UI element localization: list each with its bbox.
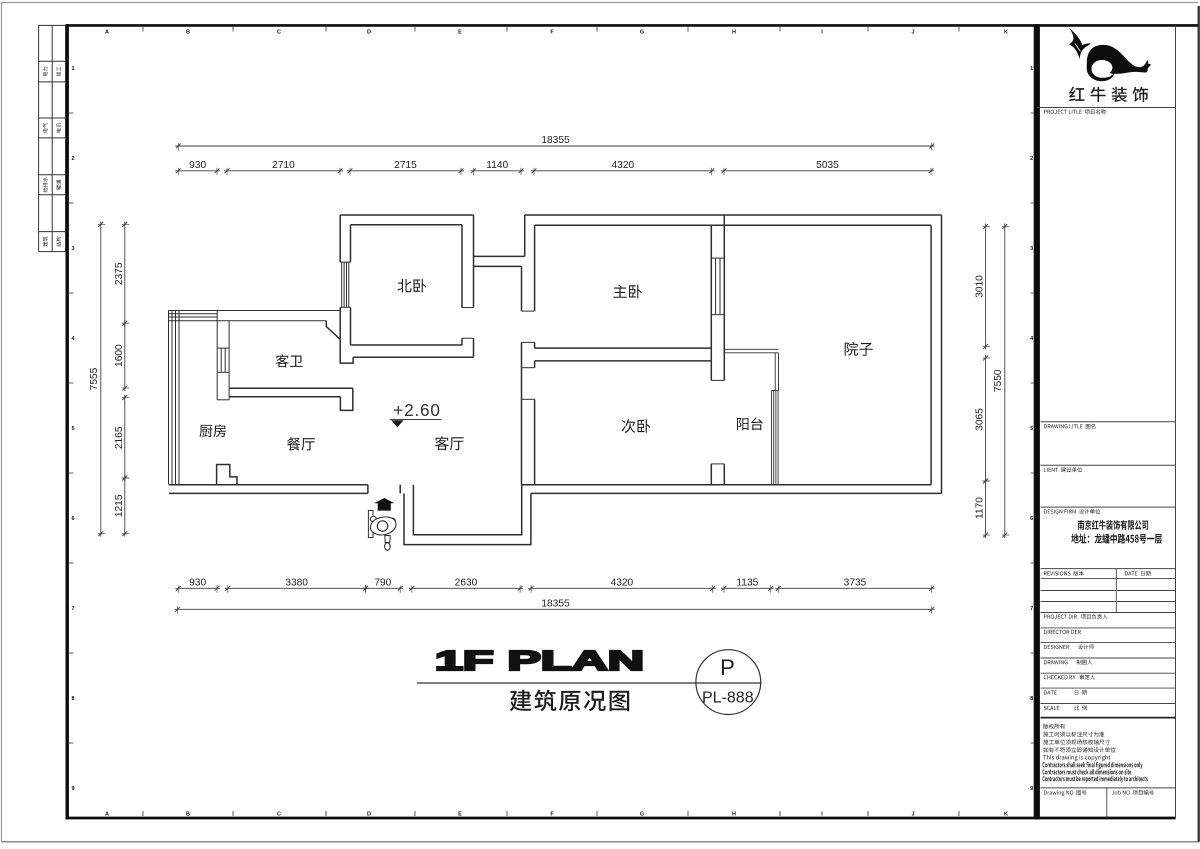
svg-text:3010: 3010 (975, 275, 986, 298)
svg-text:9: 9 (72, 786, 75, 792)
svg-text:5: 5 (72, 426, 75, 432)
svg-text:9: 9 (1030, 786, 1033, 792)
svg-text:2715: 2715 (394, 160, 417, 171)
svg-text:6: 6 (1030, 516, 1033, 522)
svg-text:3: 3 (1030, 246, 1033, 252)
svg-text:1600: 1600 (114, 344, 125, 367)
svg-text:C: C (277, 30, 281, 36)
svg-text:B: B (186, 812, 190, 818)
svg-text:K: K (1004, 812, 1008, 818)
svg-text:5: 5 (1030, 426, 1033, 432)
svg-text:G: G (640, 30, 644, 36)
svg-text:790: 790 (374, 577, 391, 588)
svg-text:2: 2 (1030, 156, 1033, 162)
svg-text:1140: 1140 (486, 160, 508, 171)
svg-text:1170: 1170 (975, 497, 986, 519)
svg-text:1215: 1215 (114, 494, 125, 517)
svg-text:3065: 3065 (975, 408, 986, 431)
svg-text:2630: 2630 (455, 577, 478, 588)
svg-text:4320: 4320 (612, 160, 635, 171)
svg-text:2165: 2165 (114, 426, 125, 449)
svg-text:8: 8 (1030, 696, 1033, 702)
svg-text:J: J (911, 812, 914, 818)
svg-text:7: 7 (1030, 606, 1033, 612)
svg-text:2: 2 (72, 156, 75, 162)
svg-text:930: 930 (189, 160, 206, 171)
svg-text:+2.60: +2.60 (393, 400, 441, 420)
svg-text:D: D (367, 30, 371, 36)
svg-text:K: K (1004, 30, 1008, 36)
svg-text:7: 7 (72, 606, 75, 612)
svg-text:18355: 18355 (541, 135, 570, 146)
svg-text:2710: 2710 (272, 160, 295, 171)
svg-text:2375: 2375 (114, 262, 125, 285)
svg-text:1F PLAN: 1F PLAN (435, 645, 644, 676)
svg-text:7550: 7550 (993, 369, 1004, 392)
svg-text:3380: 3380 (285, 577, 308, 588)
svg-text:E: E (458, 812, 462, 818)
svg-text:4320: 4320 (611, 577, 634, 588)
svg-text:1: 1 (72, 66, 75, 72)
svg-text:C: C (277, 812, 281, 818)
svg-text:H: H (732, 30, 736, 36)
svg-text:J: J (911, 30, 914, 36)
svg-text:D: D (367, 812, 371, 818)
svg-text:1: 1 (1030, 66, 1033, 72)
svg-text:8: 8 (72, 696, 75, 702)
svg-text:5035: 5035 (816, 160, 839, 171)
svg-text:H: H (732, 812, 736, 818)
svg-text:6: 6 (72, 516, 75, 522)
svg-text:1135: 1135 (736, 577, 758, 588)
svg-text:930: 930 (189, 577, 206, 588)
svg-text:B: B (186, 30, 190, 36)
svg-text:PL-888: PL-888 (702, 690, 754, 707)
svg-text:A: A (105, 30, 109, 36)
svg-text:18355: 18355 (541, 598, 570, 609)
svg-text:G: G (640, 812, 644, 818)
svg-text:3: 3 (72, 246, 75, 252)
svg-text:3735: 3735 (844, 577, 867, 588)
svg-text:A: A (105, 812, 109, 818)
svg-text:7555: 7555 (89, 367, 100, 390)
svg-text:P: P (720, 655, 735, 680)
svg-text:E: E (458, 30, 462, 36)
